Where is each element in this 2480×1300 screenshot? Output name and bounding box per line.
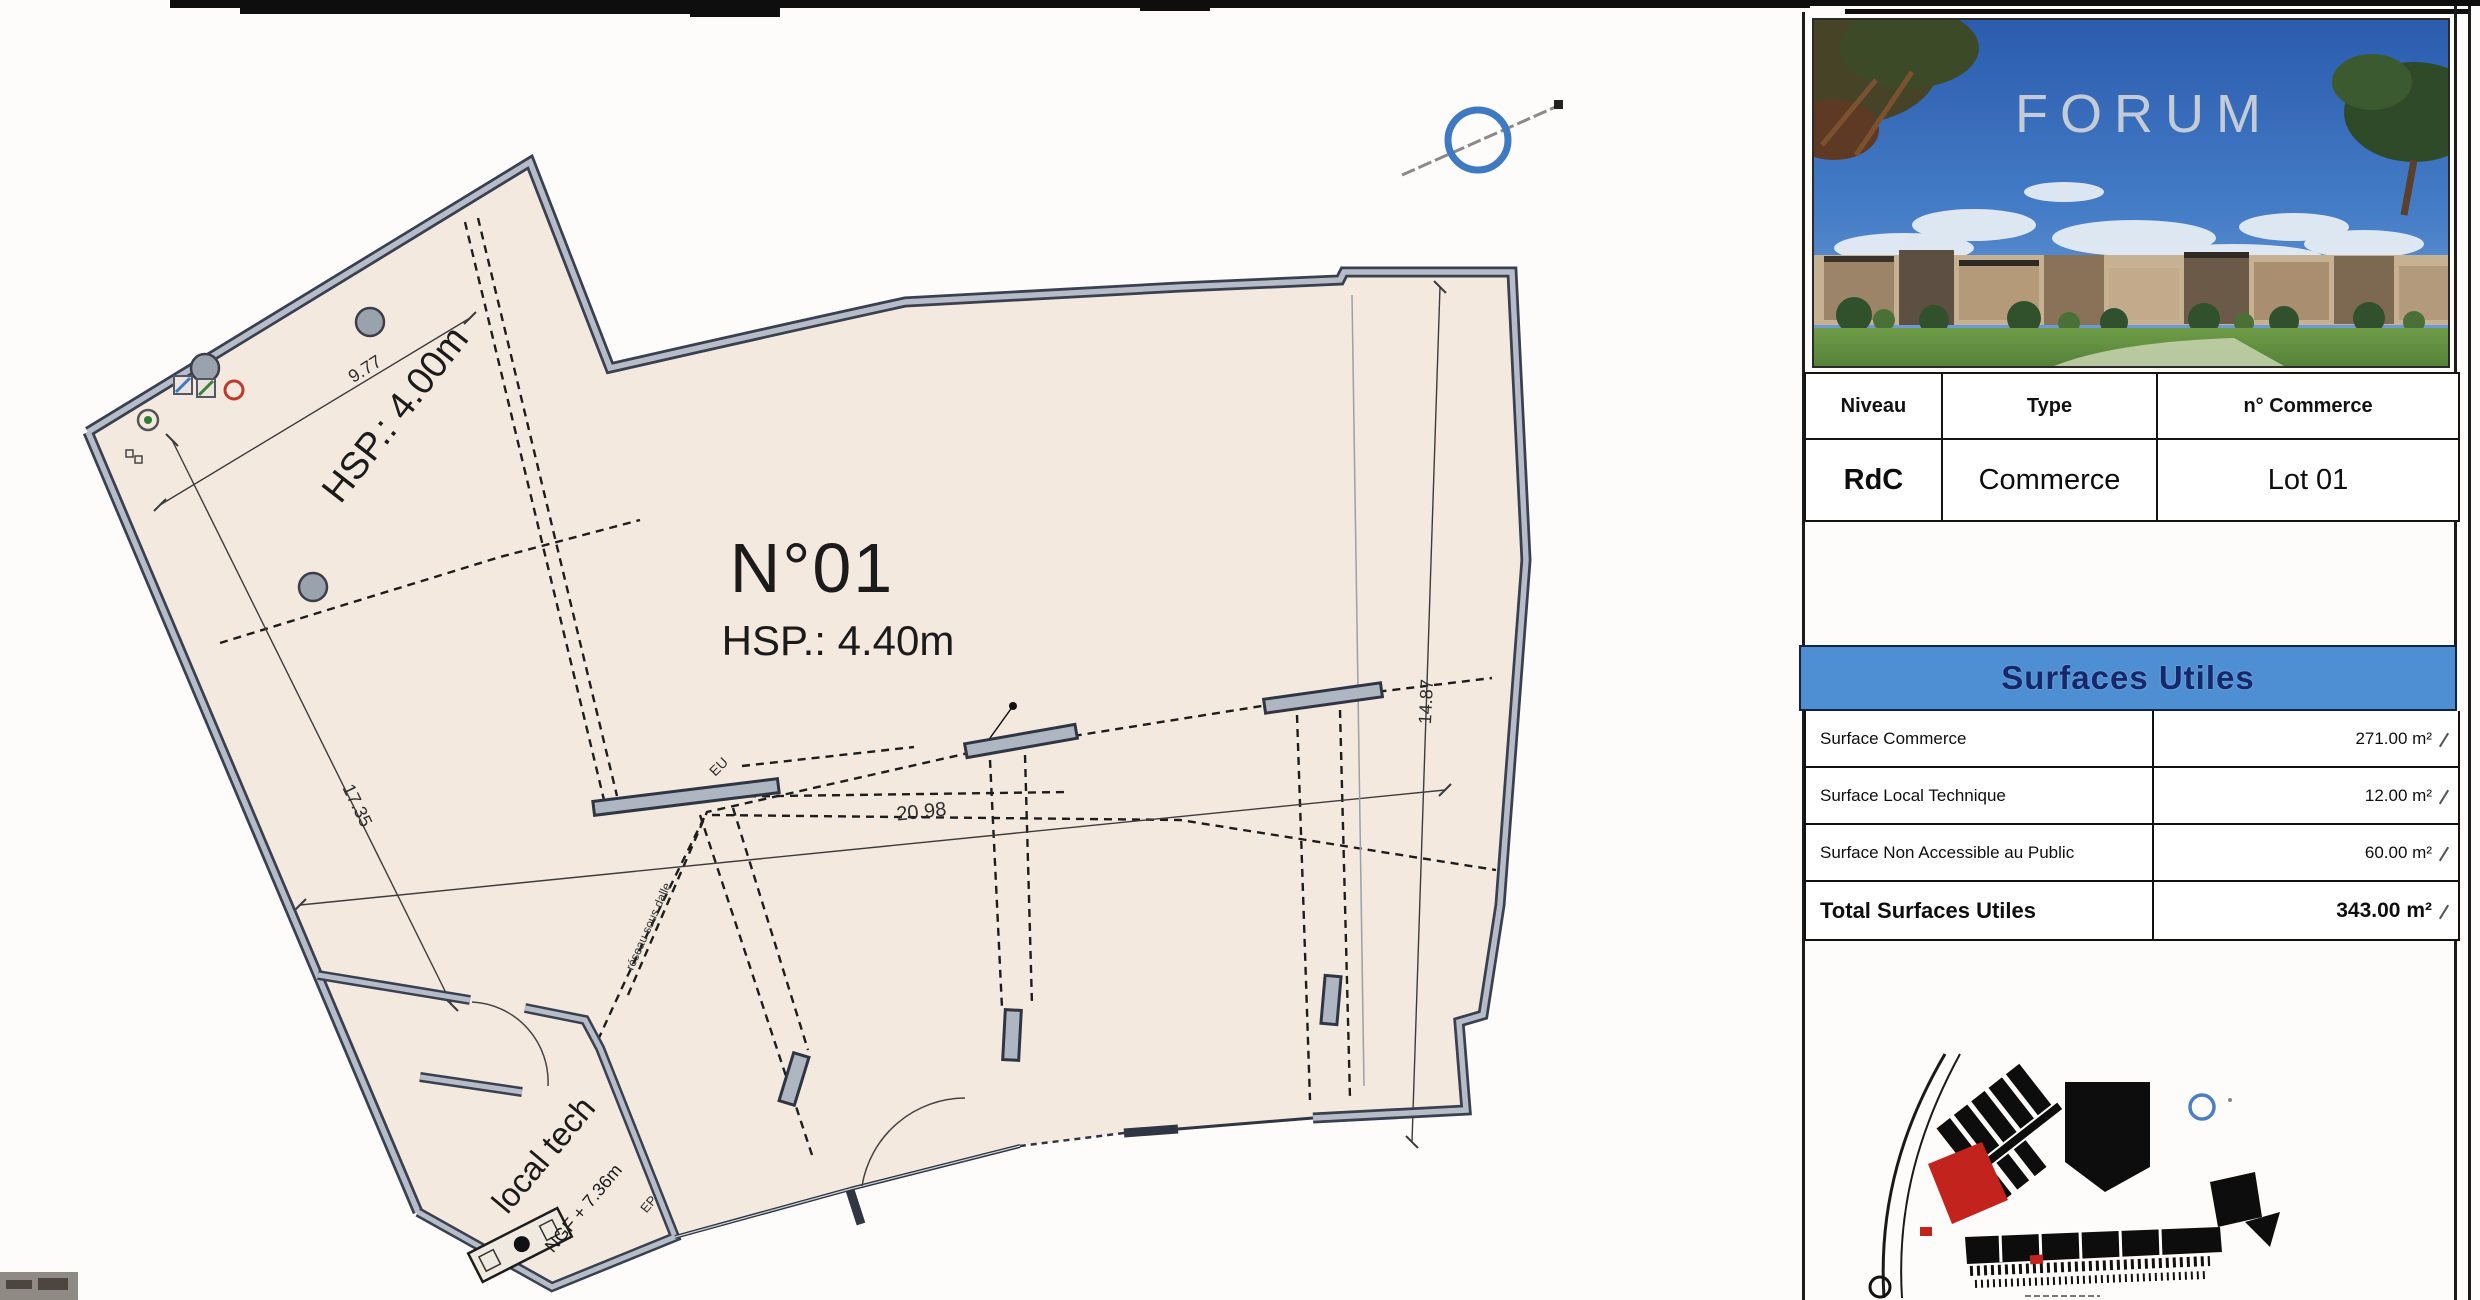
surface-value: 60.00 m² [2152,825,2458,880]
site-north-icon [2190,1095,2214,1119]
dim-right-label: 14.87 [1415,679,1437,725]
surface-row: Surface Commerce 271.00 m² [1806,711,2458,768]
cell-commerce: Lot 01 [2158,440,2458,520]
surface-label: Surface Local Technique [1806,768,2152,823]
cell-niveau: RdC [1806,440,1943,520]
unit-height-label: HSP.: 4.40m [722,617,955,664]
site-north-dot [2228,1098,2232,1102]
surface-total-label: Total Surfaces Utiles [1806,882,2152,939]
surface-total-value: 343.00 m² [2152,882,2458,939]
col-header-commerce: n° Commerce [2158,374,2458,440]
building-row [1814,250,2448,325]
scan-artifact-smudge [0,1272,78,1300]
surfaces-table: Surface Commerce 271.00 m² Surface Local… [1804,711,2460,941]
surfaces-banner: Surfaces Utiles [1799,645,2457,711]
scan-artifact-top-band [1810,0,2480,6]
surfaces-banner-title: Surfaces Utiles [2001,659,2254,697]
surface-row: Surface Local Technique 12.00 m² [1806,768,2458,825]
scan-artifact-top-band [1845,9,2470,14]
surface-value: 12.00 m² [2152,768,2458,823]
cell-type: Commerce [1943,440,2158,520]
floor-plan-drawing: N°01 HSP.: 4.40m HSP.: 4.00m 9.77 17.35 … [0,0,1800,1300]
north-arrow-icon [1402,100,1563,175]
forum-logo-text: FORUM [2015,84,2273,144]
forum-logo: FORUM [1812,18,2450,368]
lot-info-table: Niveau Type n° Commerce RdC Commerce Lot… [1804,372,2460,522]
unit-number-label: N°01 [730,529,894,607]
surface-label: Surface Non Accessible au Public [1806,825,2152,880]
surface-row: Surface Non Accessible au Public 60.00 m… [1806,825,2458,882]
site-units-row [1975,1275,2205,1284]
col-header-niveau: Niveau [1806,374,1943,440]
col-header-type: Type [1943,374,2158,440]
forum-logo-art: FORUM [1814,20,2448,366]
scanned-floorplan-page: N°01 HSP.: 4.40m HSP.: 4.00m 9.77 17.35 … [0,0,2480,1300]
surface-total-row: Total Surfaces Utiles 343.00 m² [1806,882,2458,939]
surface-value: 271.00 m² [2152,711,2458,766]
site-units-row [1970,1261,2210,1271]
site-marker-circle [1870,1277,1890,1297]
site-key-plan [1850,1052,2478,1300]
surface-label: Surface Commerce [1806,711,2152,766]
